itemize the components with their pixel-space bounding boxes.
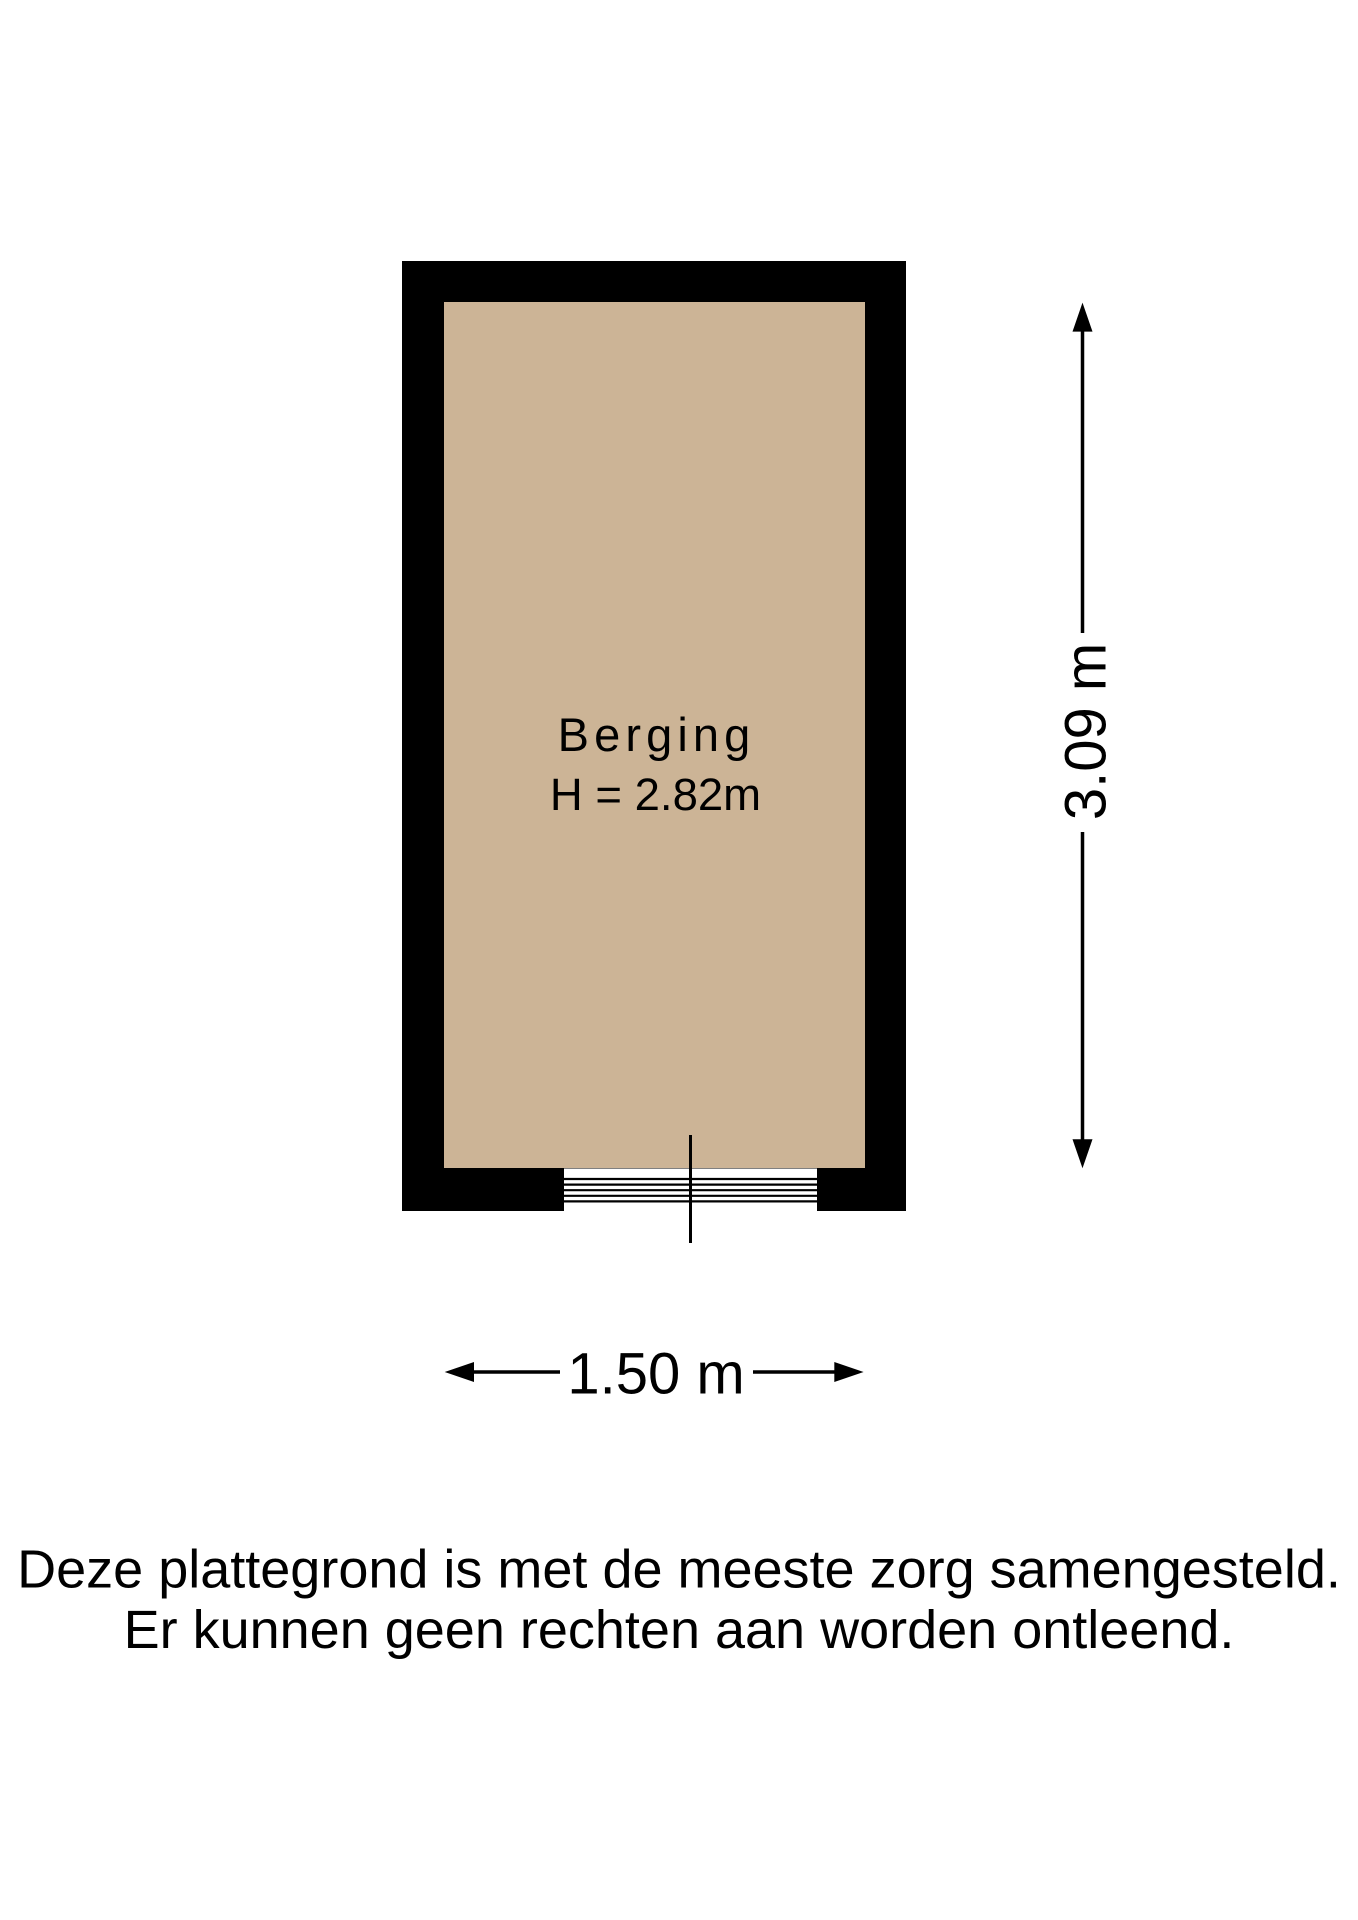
svg-text:1.50 m: 1.50 m [567, 1342, 744, 1407]
svg-text:3.09 m: 3.09 m [1054, 643, 1119, 820]
svg-text:Er kunnen geen rechten aan wor: Er kunnen geen rechten aan worden ontlee… [124, 1600, 1235, 1660]
svg-text:Berging: Berging [558, 708, 756, 761]
svg-text:H = 2.82m: H = 2.82m [550, 769, 761, 820]
svg-text:Deze plattegrond is met de mee: Deze plattegrond is met de meeste zorg s… [17, 1539, 1341, 1599]
